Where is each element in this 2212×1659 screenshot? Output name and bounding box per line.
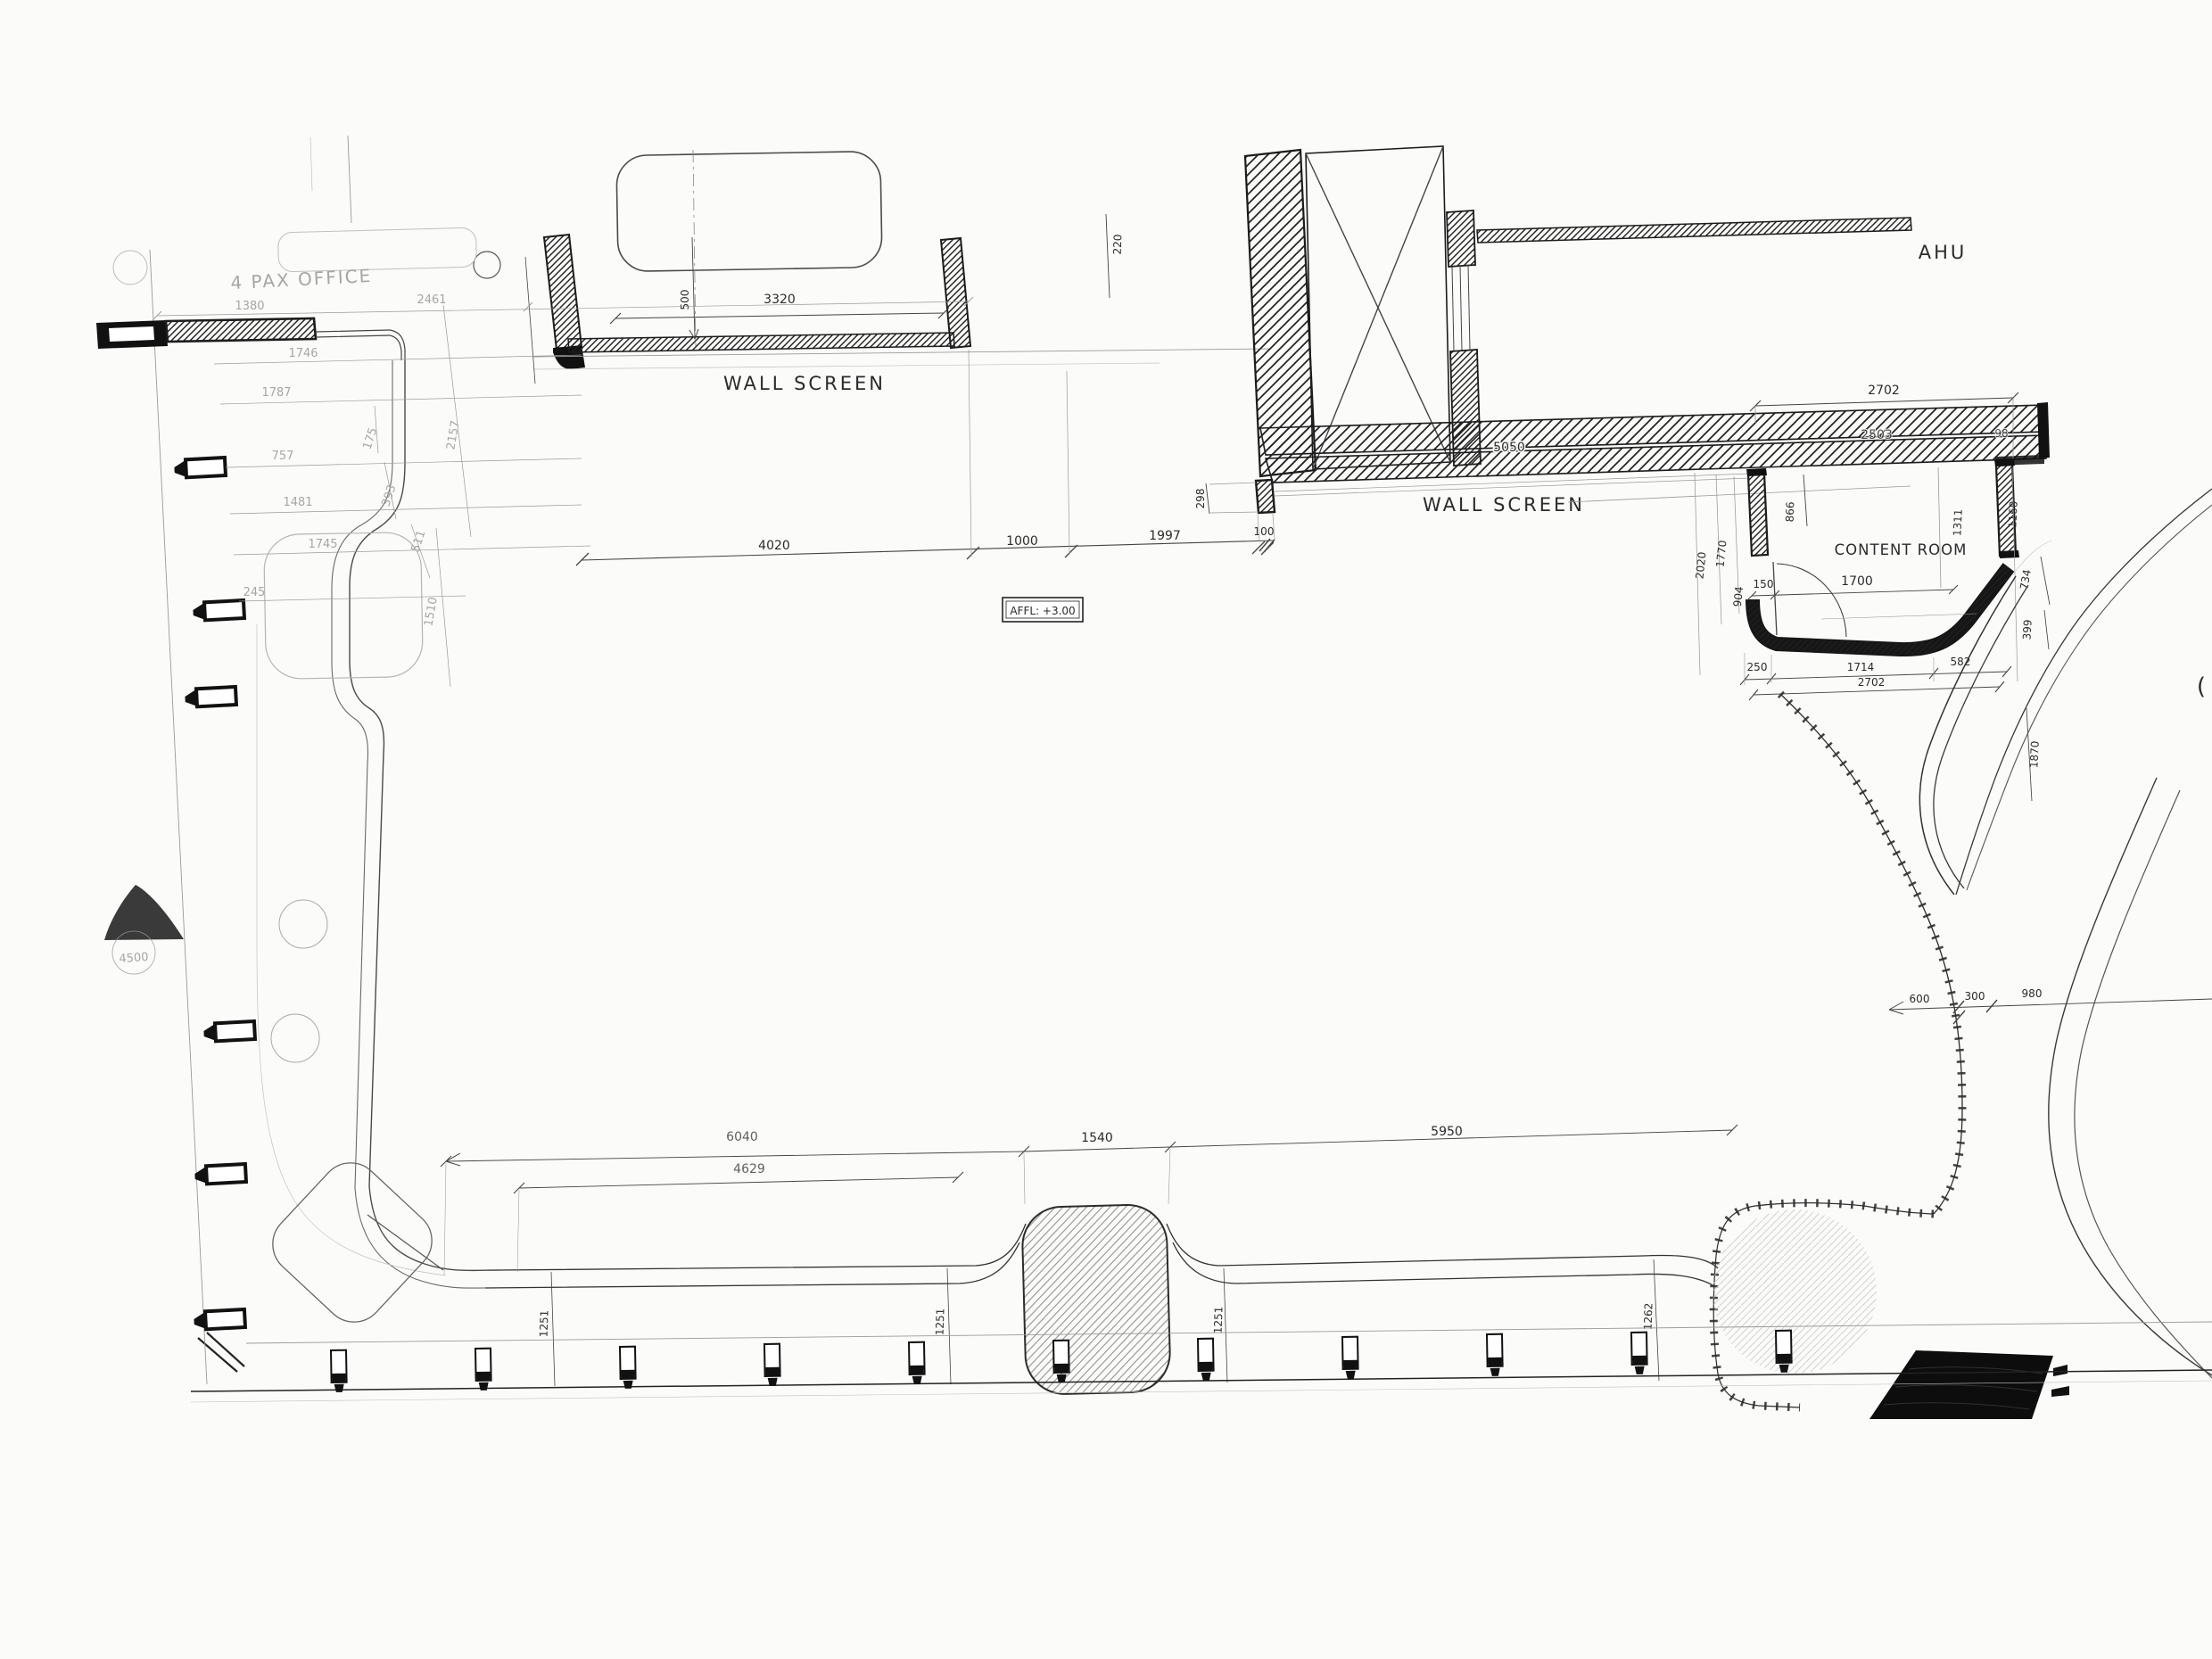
mid-wall-upper (1447, 210, 1475, 267)
pier-left (1748, 474, 1768, 556)
solid-fill-clips (2051, 1365, 2069, 1397)
dim-text-faint: 4500 (119, 951, 149, 966)
fixture (909, 1342, 925, 1384)
dim-text: 980 (2022, 987, 2043, 1000)
dim-text: 98 (1994, 427, 2008, 440)
dim-text: 866 (1784, 501, 1797, 522)
dim-text-faint: 757 (272, 450, 294, 463)
dim-line-6040 (446, 1151, 1024, 1161)
dim-line (582, 541, 1274, 560)
north-triangle (104, 885, 184, 940)
plan-drawing: 3320 500 WALL SCREEN 220 4020 1000 1997 … (0, 0, 2212, 1659)
fixture (1342, 1337, 1358, 1379)
vert-1262 (1654, 1259, 1659, 1381)
dim-text: 1997 (1149, 529, 1181, 543)
dim-text-faint: 1787 (261, 386, 291, 400)
door-arc (1777, 564, 1846, 637)
boundary-faint (257, 624, 446, 1275)
dim-text: 4629 (733, 1162, 765, 1176)
curve-b2 (1967, 505, 2212, 890)
fixture (331, 1350, 347, 1392)
dim-line-220 (1106, 214, 1110, 298)
vert-mark (348, 136, 351, 223)
room-label-pencil: 4 PAX OFFICE (230, 265, 373, 293)
affl-tag: AFFL: +3.00 (1003, 598, 1083, 622)
dim-text: 1251 (933, 1308, 946, 1335)
dim-text-faint: 1510 (422, 596, 441, 627)
dim-text-faint: 1380 (235, 300, 264, 313)
dim-text: 5050 (1493, 441, 1525, 455)
dim-text: 220 (1111, 234, 1125, 254)
socket (193, 600, 244, 621)
fixture (620, 1347, 636, 1389)
dim-text: 1540 (1081, 1131, 1113, 1145)
dim-text: 1251 (537, 1309, 550, 1337)
dim-text: 1311 (1951, 508, 1965, 536)
credenza-faint (277, 227, 476, 272)
dim-text: 1000 (1006, 534, 1038, 549)
vert-1251a (551, 1272, 555, 1386)
pier (1256, 480, 1275, 513)
fixture (475, 1349, 491, 1391)
dim-text: 399 (2020, 619, 2034, 640)
wall-left (544, 235, 582, 350)
socket (174, 458, 226, 478)
door-louvers (1452, 265, 1470, 351)
shaft-x-brace (1306, 146, 1450, 469)
ticked-wall-s (1780, 694, 1962, 1214)
cropped-text: ( (2197, 673, 2206, 700)
dim-ticks (1953, 1000, 1997, 1024)
left-wall-inner (350, 360, 499, 1270)
dim-text: 4020 (758, 539, 790, 553)
vert-mark (310, 137, 312, 191)
bottom-wall-band (1753, 567, 2009, 649)
dim-text: 582 (1951, 656, 1971, 668)
fixture (764, 1344, 780, 1386)
wall-bend (390, 330, 405, 360)
dim-text-faint: 393 (380, 483, 400, 508)
dim-text: 1714 (1847, 661, 1875, 673)
table (616, 151, 882, 271)
curve-c2 (2075, 790, 2212, 1378)
socket (185, 687, 236, 707)
dim-text: 298 (1194, 489, 1207, 509)
dim-line-866 (1803, 475, 1807, 526)
wall-right (941, 238, 970, 348)
drawing-sheet: 3320 500 WALL SCREEN 220 4020 1000 1997 … (0, 0, 2212, 1659)
dim-text: 2020 (1693, 551, 1708, 580)
main-horizontal-wall: 5050 2503 98 2702 WALL SCREEN (1260, 384, 2050, 516)
ext (1024, 1149, 1170, 1204)
curve-b1 (1956, 489, 2212, 895)
dim-text: 6040 (726, 1130, 758, 1144)
margin-line (150, 250, 207, 1384)
top-dim-chain: 4020 1000 1997 100 (576, 350, 1274, 565)
dim-text: 100 (1254, 525, 1275, 538)
wall-tail (316, 330, 390, 337)
dim-text: 734 (2018, 568, 2034, 590)
leader-line (1568, 486, 1911, 502)
dim-line-4629 (519, 1177, 958, 1188)
content-room: CONTENT ROOM 2020 1770 904 866 1311 1160… (1693, 458, 2206, 801)
fixture (1487, 1334, 1503, 1376)
top-room: 3320 500 WALL SCREEN 220 (310, 136, 1271, 394)
ext-line (1067, 371, 1069, 555)
wall-screen-label: WALL SCREEN (723, 373, 886, 394)
dim-line-1700 (1752, 590, 1953, 596)
door-leaf (1773, 562, 1777, 635)
ticked-wall-s-line (1780, 694, 1962, 1214)
wall-end-cap (2037, 402, 2050, 458)
fixture (1631, 1333, 1647, 1374)
dim-text: 2503 (1861, 428, 1893, 442)
fixture (1198, 1339, 1214, 1381)
dim-line-734 (2041, 557, 2050, 605)
dim-arrow (441, 1153, 460, 1167)
wall-bar (166, 318, 316, 342)
ext-vert (1938, 467, 1941, 588)
dim-line-600-300-980 (1889, 999, 2212, 1010)
thin-band-wall (1477, 218, 1911, 243)
dim-text: 1870 (2027, 740, 2042, 768)
dim-text: 2702 (1868, 384, 1900, 398)
dim-ticks (576, 541, 1274, 565)
dim-text: 1262 (1641, 1302, 1655, 1330)
circle-marker (279, 900, 327, 948)
arc-faint (2016, 541, 2051, 571)
dim-text: 1251 (1211, 1306, 1225, 1333)
dim-text: 5950 (1431, 1125, 1463, 1139)
ext-vert (2012, 467, 2018, 681)
desk-faint (264, 532, 424, 679)
dim-line (615, 313, 944, 318)
wall-bar-slot (109, 326, 154, 342)
socket (194, 1164, 246, 1184)
dim-text-faint: 1745 (308, 538, 337, 551)
shelf-line (1821, 614, 1977, 619)
vert-dim (525, 257, 535, 384)
content-room-label: CONTENT ROOM (1835, 541, 1968, 558)
dim-text: 904 (1731, 586, 1746, 607)
glass-line-2 (533, 363, 1160, 369)
affl-label: AFFL: +3.00 (1010, 605, 1075, 617)
dim-text: 300 (1965, 990, 1985, 1003)
pier-left-cap (1746, 468, 1767, 476)
circle-marker (271, 1014, 319, 1062)
wall-screen-label: WALL SCREEN (1423, 494, 1585, 516)
socket (203, 1021, 255, 1042)
ahu-label: AHU (1919, 242, 1968, 263)
socket (194, 1309, 245, 1330)
left-wall-outer (332, 360, 485, 1288)
wallscreen-band (568, 333, 954, 352)
dim-text-faint: 2461 (417, 293, 446, 307)
ext (1745, 653, 1934, 685)
dim-line-399 (2044, 610, 2049, 649)
dim-line-1540 (1024, 1147, 1170, 1151)
ext-line (969, 350, 971, 557)
dim-line-2702 (1755, 398, 2013, 406)
left-area: 4500 4 PAX OFFICE 1380 2461 1746 1787 75… (96, 227, 973, 1384)
dim-text-faint: 1746 (288, 347, 318, 360)
dim-text: 150 (1754, 578, 1774, 590)
ext (444, 1163, 519, 1275)
dim-line-faint (214, 355, 582, 364)
circle-marker (113, 251, 147, 285)
column-hatched (1021, 1204, 1170, 1395)
dim-text: 250 (1747, 661, 1768, 673)
rotated-pad (260, 1151, 444, 1334)
curve-c1 (2049, 778, 2212, 1375)
vert-1251b (947, 1268, 951, 1384)
dim-text-faint: 245 (243, 586, 266, 599)
dim-text: 1700 (1841, 574, 1873, 589)
dim-text: 2702 (1858, 676, 1886, 689)
carpet-hatch (1713, 1209, 1877, 1374)
dim-text: 1770 (1713, 540, 1729, 568)
dim-text: 600 (1910, 993, 1930, 1005)
ext (1209, 483, 1259, 513)
dim-text-faint: 1481 (283, 496, 312, 509)
column-circle (474, 252, 500, 278)
dim-arrow-left (1889, 1002, 1903, 1014)
